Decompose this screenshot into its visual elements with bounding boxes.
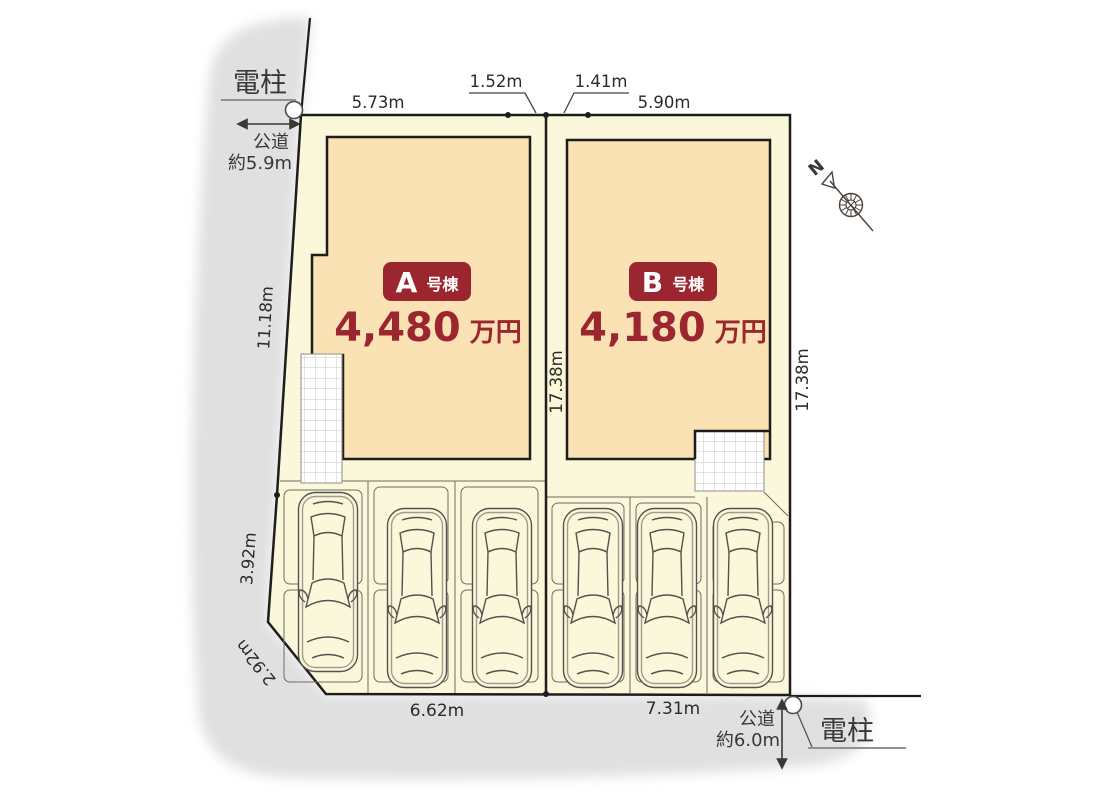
road-left-width: 約5.9m: [228, 153, 292, 174]
pole-bottom-label: 電柱: [820, 716, 874, 747]
terrace-tiles-b: [695, 431, 764, 491]
compass-icon: N: [805, 156, 873, 231]
dimension-top-gap-b: 1.41m: [575, 72, 628, 91]
road-bottom-name: 公道: [739, 709, 775, 730]
dimension-bottom-a: 6.62m: [410, 701, 464, 721]
car-icon: [638, 509, 697, 688]
site-plan: 電柱 公道 約5.9m 5.73m 1.52m 1.41m 5.90m 11.1…: [0, 0, 1108, 800]
compass-north-label: N: [805, 156, 829, 180]
dimension-left-lower: 3.92m: [237, 532, 260, 586]
dimension-right-depth: 17.38m: [793, 348, 812, 411]
lot-a-badge-suffix: 号棟: [426, 275, 459, 294]
lot-b-price-unit: 万円: [715, 318, 767, 348]
dimension-gap-b-leader: [564, 93, 629, 113]
dimension-left-upper: 11.18m: [254, 285, 277, 349]
car-icon: [473, 509, 532, 688]
lot-b-badge-suffix: 号棟: [672, 275, 705, 294]
car-icon: [714, 509, 773, 688]
road-left-name: 公道: [253, 132, 289, 153]
utility-pole-bottom-icon: [785, 697, 802, 714]
car-icon: [299, 493, 358, 672]
pole-top-label: 電柱: [233, 68, 287, 99]
lot-b-badge-letter: B: [642, 266, 663, 299]
terrace-tiles-a: [301, 354, 342, 483]
dimension-top-b: 5.90m: [638, 93, 691, 112]
site-plan-drawing: 電柱 公道 約5.9m 5.73m 1.52m 1.41m 5.90m 11.1…: [0, 0, 1108, 800]
dimension-top-gap-a: 1.52m: [470, 72, 523, 91]
car-icon: [564, 509, 623, 688]
lot-a-price-number: 4,480: [334, 305, 461, 351]
utility-pole-top-icon: [286, 102, 303, 119]
dimension-gap-a-leader: [469, 93, 536, 113]
lot-a-badge-letter: A: [396, 266, 418, 299]
car-icon: [388, 509, 447, 688]
road-bottom-width: 約6.0m: [716, 730, 780, 751]
lot-b-price-number: 4,180: [579, 305, 706, 351]
dimension-center-depth: 17.38m: [547, 350, 566, 413]
dimension-top-a: 5.73m: [352, 93, 405, 112]
lot-a-price-unit: 万円: [470, 318, 522, 348]
dimension-bottom-b: 7.31m: [646, 699, 700, 719]
